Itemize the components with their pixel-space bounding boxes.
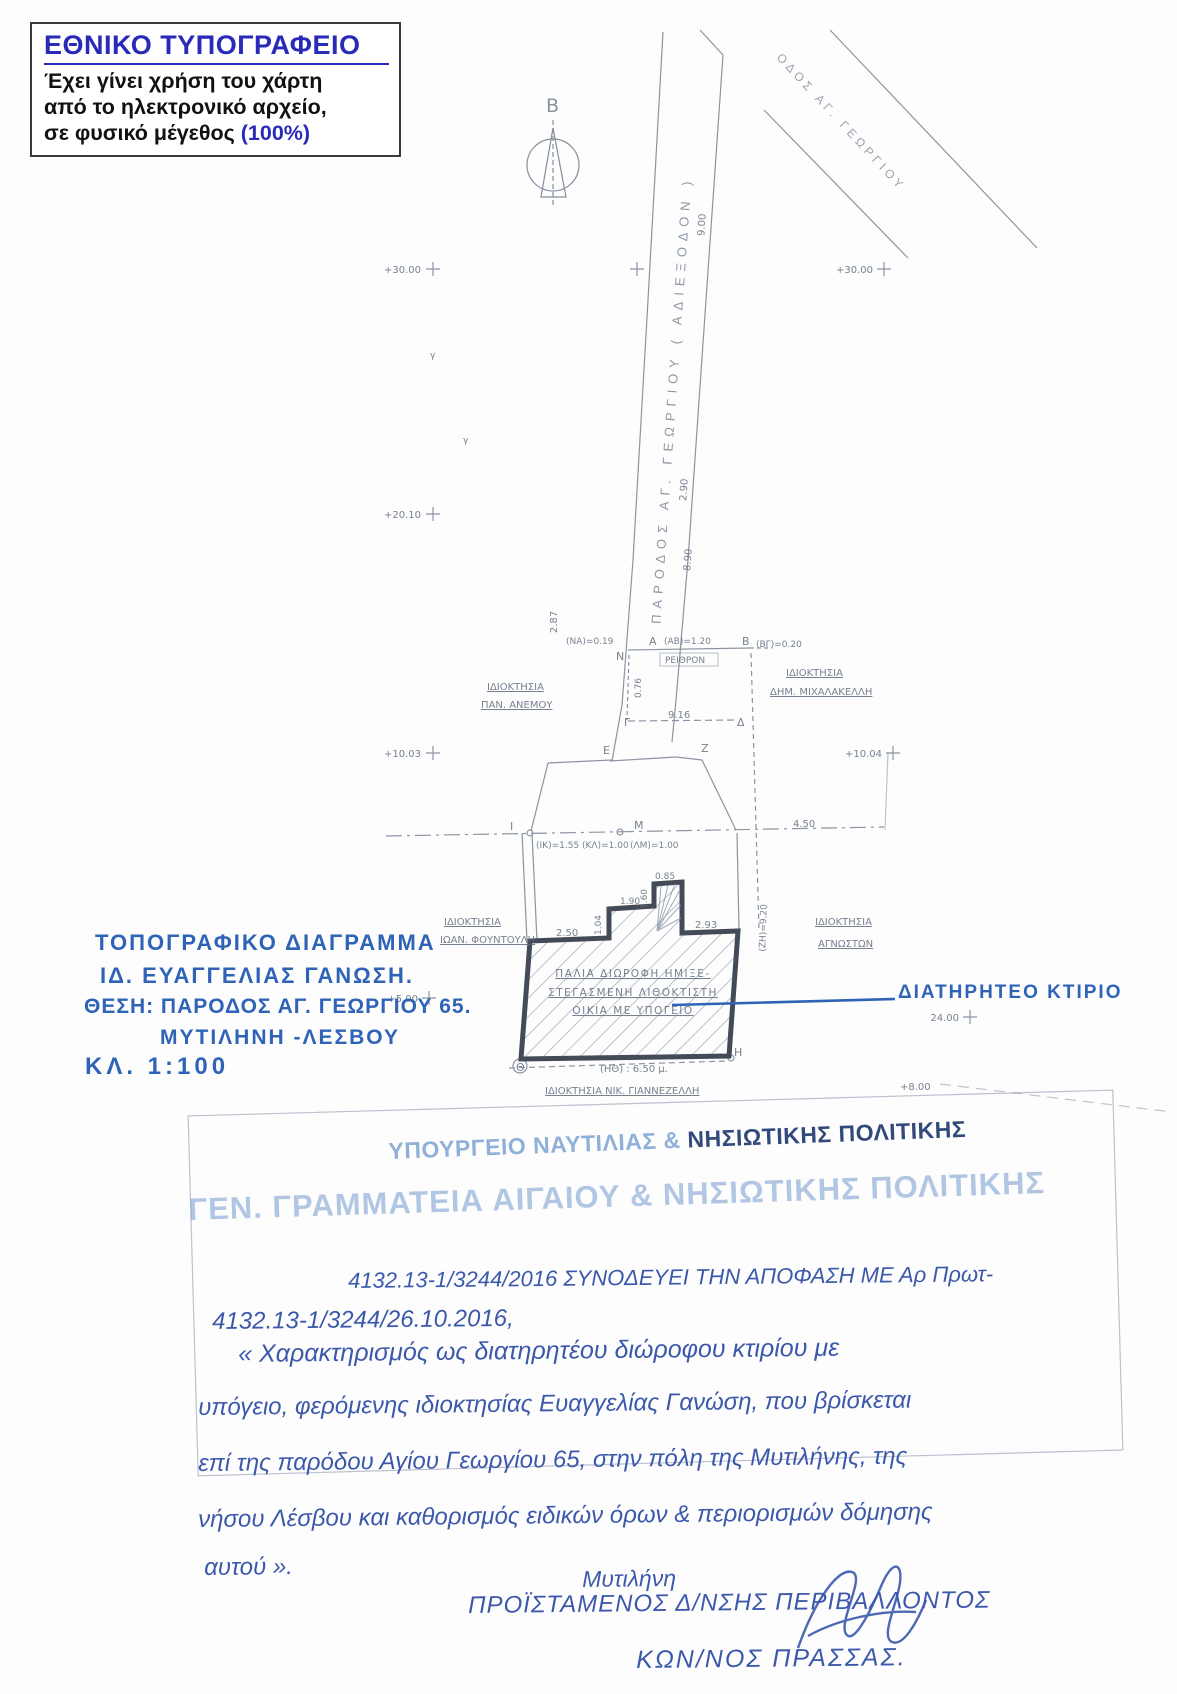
- dim-label: 9.00: [696, 213, 709, 236]
- dim-label: 2.93: [695, 920, 717, 931]
- road-labels: ΠΑΡΟΔΟΣ ΑΓ. ΓΕΩΡΓΙΟΥ ( ΑΔΙΕΞΟΔΟΝ ) ΟΔΟΣ …: [648, 50, 908, 624]
- point-label: Γ: [624, 716, 631, 729]
- scanned-document-page: ΕΘΝΙΚΟ ΤΥΠΟΓΡΑΦΕΙΟ Έχει γίνει χρήση του …: [0, 0, 1177, 1694]
- owner-fountouli-line2: ΙΩΑΝ. ΦΟΥΝΤΟΥΛΗ: [440, 935, 535, 946]
- dim-label: 0.76: [634, 678, 644, 698]
- dim-label: 9.16: [668, 710, 690, 721]
- point-label: Θ: [516, 1061, 525, 1074]
- dim-label: 1.60: [640, 889, 650, 909]
- owner-fountouli-line1: ΙΔΙΟΚΤΗΣΙΑ: [444, 917, 501, 928]
- preserved-building-label: ΔΙΑΤΗΡΗΤΕΟ ΚΤΙΡΙΟ: [898, 982, 1122, 1004]
- owner-giannezelli: ΙΔΙΟΚΤΗΣΙΑ ΝΙΚ. ΓΙΑΝΝΕΖΕΛΛΗ: [545, 1086, 699, 1097]
- owner-agnoston-line2: ΑΓΝΩΣΤΩΝ: [818, 939, 873, 950]
- point-label: Β: [742, 635, 750, 648]
- point-label: Ε: [603, 744, 610, 757]
- elevation-label: +20.10: [384, 510, 421, 521]
- dim-label: (ΒΓ)=0.20: [756, 640, 802, 650]
- dim-label: 1.04: [594, 915, 604, 935]
- survey-drawing: Β: [0, 0, 1177, 1694]
- point-label: Δ: [737, 716, 745, 729]
- owner-agnoston-line1: ΙΔΙΟΚΤΗΣΙΑ: [815, 917, 872, 928]
- title-block-line3: ΘΕΣΗ: ΠΑΡΟΔΟΣ ΑΓ. ΓΕΩΡΓΙΟΥ 65.: [84, 995, 471, 1019]
- dim-label: (ΖΗ)=9.20: [758, 904, 770, 952]
- owner-anemou-line2: ΠΑΝ. ΑΝΕΜΟΥ: [481, 700, 553, 711]
- handwritten-body-line5: αυτού ».: [204, 1553, 293, 1582]
- road-lines: [386, 30, 1172, 1112]
- dim-label: (ΑΒ)=1.20: [664, 637, 711, 647]
- dim-label: 2.90: [678, 478, 691, 501]
- dim-label: 1.90: [620, 897, 640, 907]
- elevation-label: +10.03: [384, 749, 421, 760]
- dim-label: 4.50: [793, 819, 815, 830]
- elevation-label: +10.04: [845, 749, 882, 760]
- owner-anemou-line1: ΙΔΙΟΚΤΗΣΙΑ: [487, 682, 544, 693]
- signer-title: ΠΡΟΪΣΤΑΜΕΝΟΣ Δ/ΝΣΗΣ ΠΕΡΙΒΑΛΛΟΝΤΟΣ: [468, 1587, 990, 1620]
- dim-label: (ΙΚ)=1.55 (ΚΛ)=1.00: [536, 841, 629, 851]
- cross-road-label: ΟΔΟΣ ΑΓ. ΓΕΩΡΓΙΟΥ: [774, 50, 909, 193]
- elevation-label: +8.00: [900, 1082, 931, 1093]
- preserved-building-outline: ΠΑΛΙΑ ΔΙΩΡΟΦΗ ΗΜΙΞΕ- ΣΤΕΓΑΣΜΕΝΗ ΛΙΘΟΚΤΙΣ…: [521, 882, 738, 1059]
- title-block-line2: ΙΔ. ΕΥΑΓΓΕΛΙΑΣ ΓΑΝΩΣΗ.: [100, 963, 414, 989]
- pencil-mark: γ: [430, 351, 436, 361]
- owner-michalakelli-line2: ΔΗΜ. ΜΙΧΑΛΑΚΕΛΛΗ: [770, 687, 872, 698]
- north-label: Β: [546, 95, 559, 117]
- point-label: Ι: [510, 820, 513, 833]
- point-label: Α: [649, 635, 657, 648]
- title-block-scale: ΚΛ. 1:100: [85, 1053, 229, 1081]
- pencil-mark: γ: [463, 436, 469, 446]
- dim-label: (ΗΘ) : 6.50 μ.: [600, 1064, 668, 1075]
- dim-label: 8.90: [682, 548, 695, 571]
- point-label: Η: [734, 1046, 742, 1059]
- signer-name: ΚΩΝ/ΝΟΣ ΠΡΑΣΣΑΣ.: [636, 1643, 907, 1675]
- title-block-line1: ΤΟΠΟΓΡΑΦΙΚΟ ΔΙΑΓΡΑΜΜΑ: [95, 930, 436, 956]
- owner-michalakelli-line1: ΙΔΙΟΚΤΗΣΙΑ: [786, 668, 843, 679]
- gutter-label: ΡΕΙΘΡΟΝ: [665, 656, 705, 666]
- point-label: Μ: [634, 819, 644, 832]
- building-label-line1: ΠΑΛΙΑ ΔΙΩΡΟΦΗ ΗΜΙΞΕ-: [555, 968, 710, 980]
- elevation-label: +30.00: [384, 265, 421, 276]
- point-label: Ν: [616, 650, 624, 663]
- dim-label: 0.85: [655, 872, 675, 882]
- dim-label: (ΛΜ)=1.00: [630, 841, 679, 851]
- north-arrow-symbol: Β: [527, 95, 579, 207]
- dim-label: 2.87: [549, 611, 560, 633]
- building-label-line2: ΣΤΕΓΑΣΜΕΝΗ ΛΙΘΟΚΤΙΣΤΗ: [548, 987, 718, 999]
- building-label-line3: ΟΙΚΙΑ ΜΕ ΥΠΟΓΕΙΟ: [572, 1005, 693, 1017]
- dim-label: (ΝΑ)=0.19: [566, 637, 614, 647]
- handwritten-protocol-line2: 4132.13-1/3244/26.10.2016,: [212, 1305, 514, 1336]
- point-label: Ζ: [701, 742, 709, 755]
- elevation-label: +30.00: [836, 265, 873, 276]
- elevation-label: 24.00: [930, 1013, 959, 1024]
- handwritten-city: Μυτιλήνη: [582, 1565, 676, 1593]
- title-block-line4: ΜΥΤΙΛΗΝΗ -ΛΕΣΒΟΥ: [160, 1026, 400, 1050]
- dim-label: 2.50: [556, 928, 578, 939]
